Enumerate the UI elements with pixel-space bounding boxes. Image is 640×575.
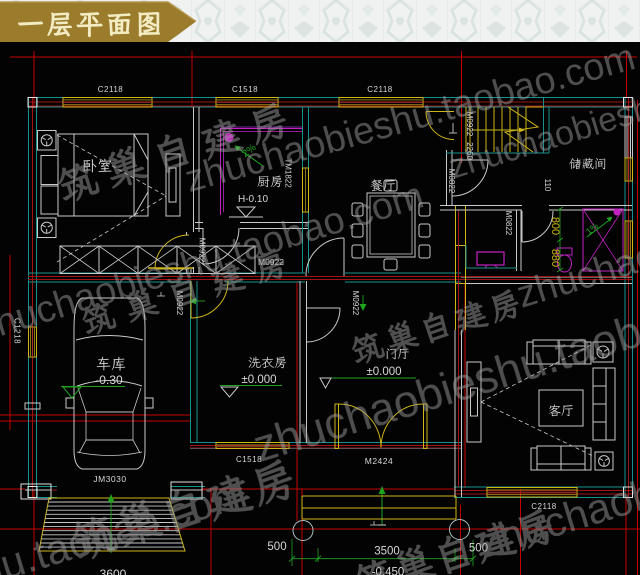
svg-text:800: 800 [549,217,561,235]
svg-text:±0.000: ±0.000 [241,374,276,386]
svg-text:±0.000: ±0.000 [366,366,401,378]
svg-text:110: 110 [543,179,552,192]
svg-text:C2118: C2118 [367,85,393,94]
svg-text:C1518: C1518 [232,85,258,94]
svg-text:-0.30: -0.30 [95,373,123,387]
svg-text:M2424: M2424 [365,456,394,466]
svg-text:M0922: M0922 [351,291,360,316]
svg-text:3600: 3600 [100,567,127,575]
svg-text:JM3030: JM3030 [93,474,126,484]
svg-text:500: 500 [267,541,286,553]
svg-text:3500: 3500 [374,546,400,558]
svg-text:C2118: C2118 [98,85,124,94]
svg-text:M0822: M0822 [504,211,513,236]
svg-text:H-0.10: H-0.10 [238,194,268,205]
